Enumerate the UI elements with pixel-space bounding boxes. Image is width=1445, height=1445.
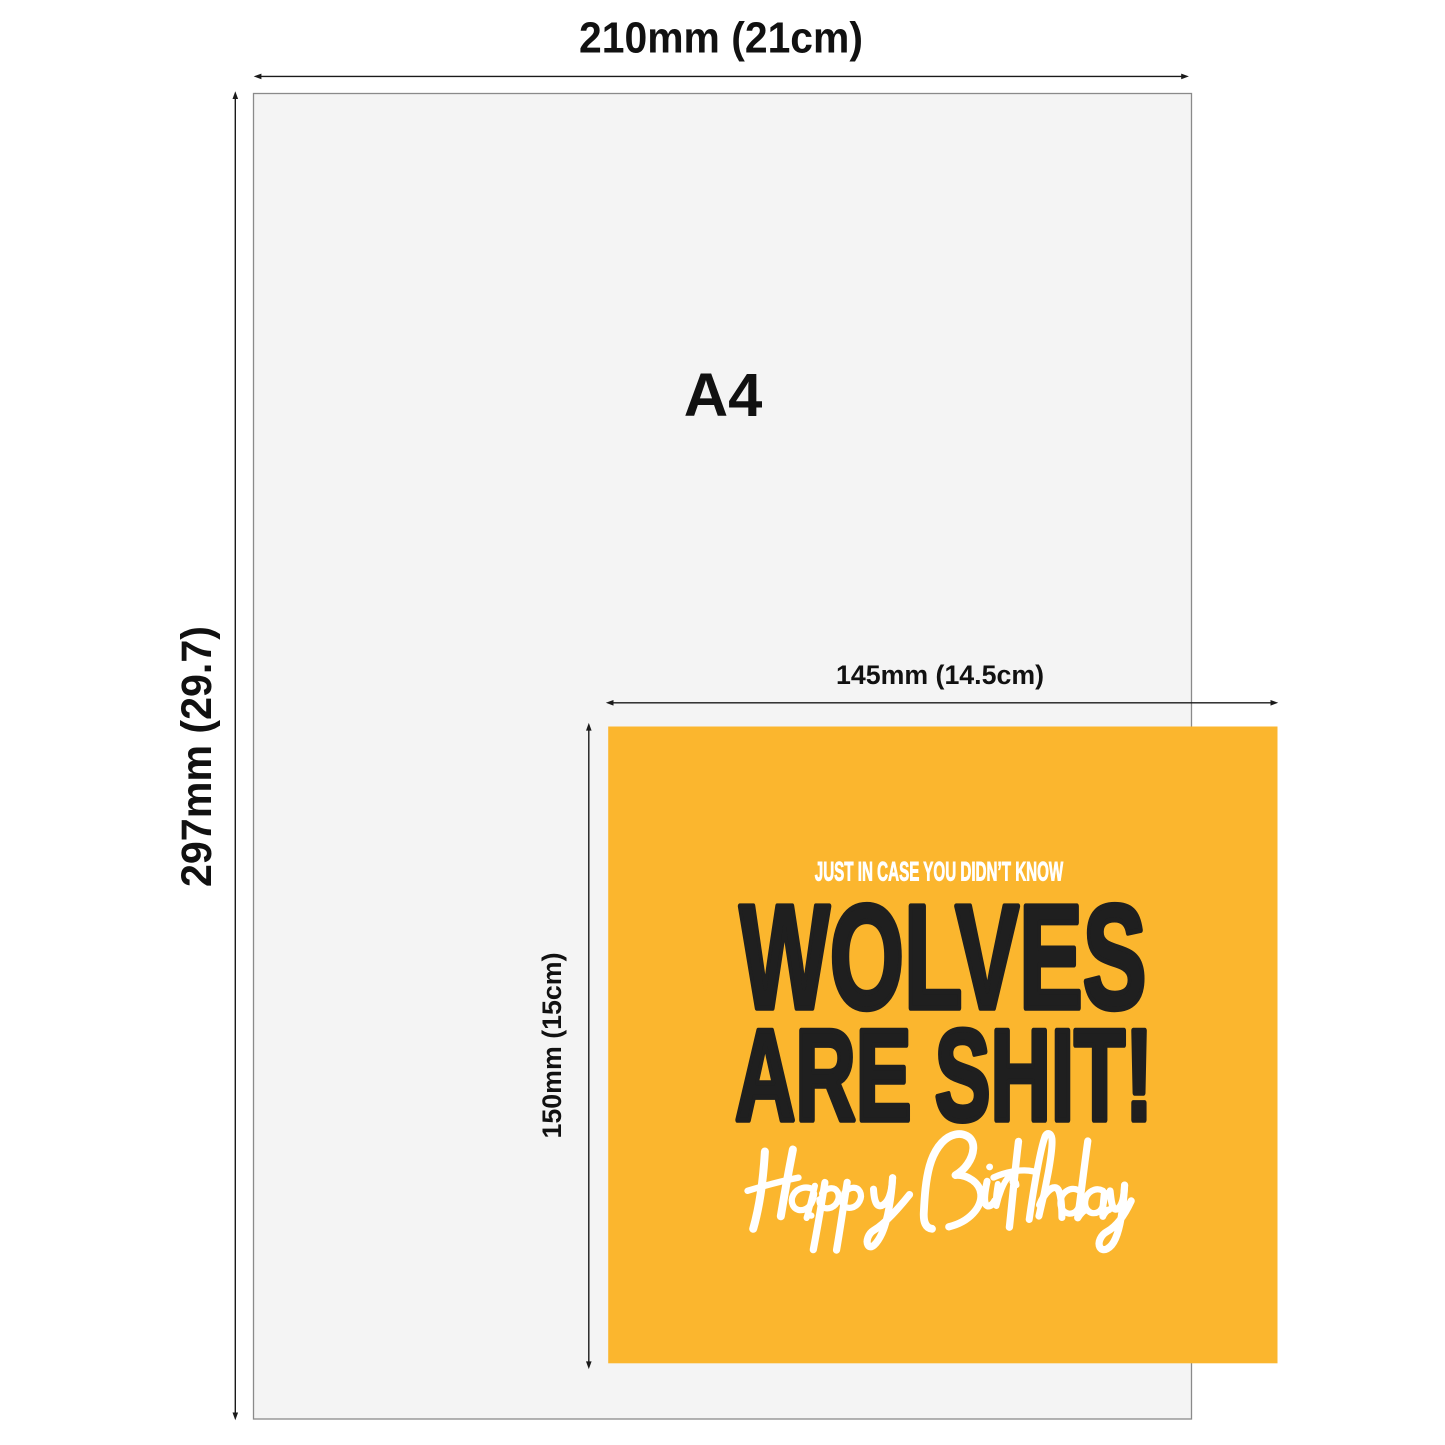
svg-text:297mm (29.7): 297mm (29.7) [173, 626, 221, 887]
svg-text:ARE SHIT!: ARE SHIT! [735, 1002, 1153, 1148]
svg-text:145mm (14.5cm): 145mm (14.5cm) [836, 660, 1044, 690]
svg-text:150mm (15cm): 150mm (15cm) [537, 953, 567, 1139]
svg-text:A4: A4 [684, 361, 763, 430]
svg-text:210mm (21cm): 210mm (21cm) [579, 14, 863, 63]
